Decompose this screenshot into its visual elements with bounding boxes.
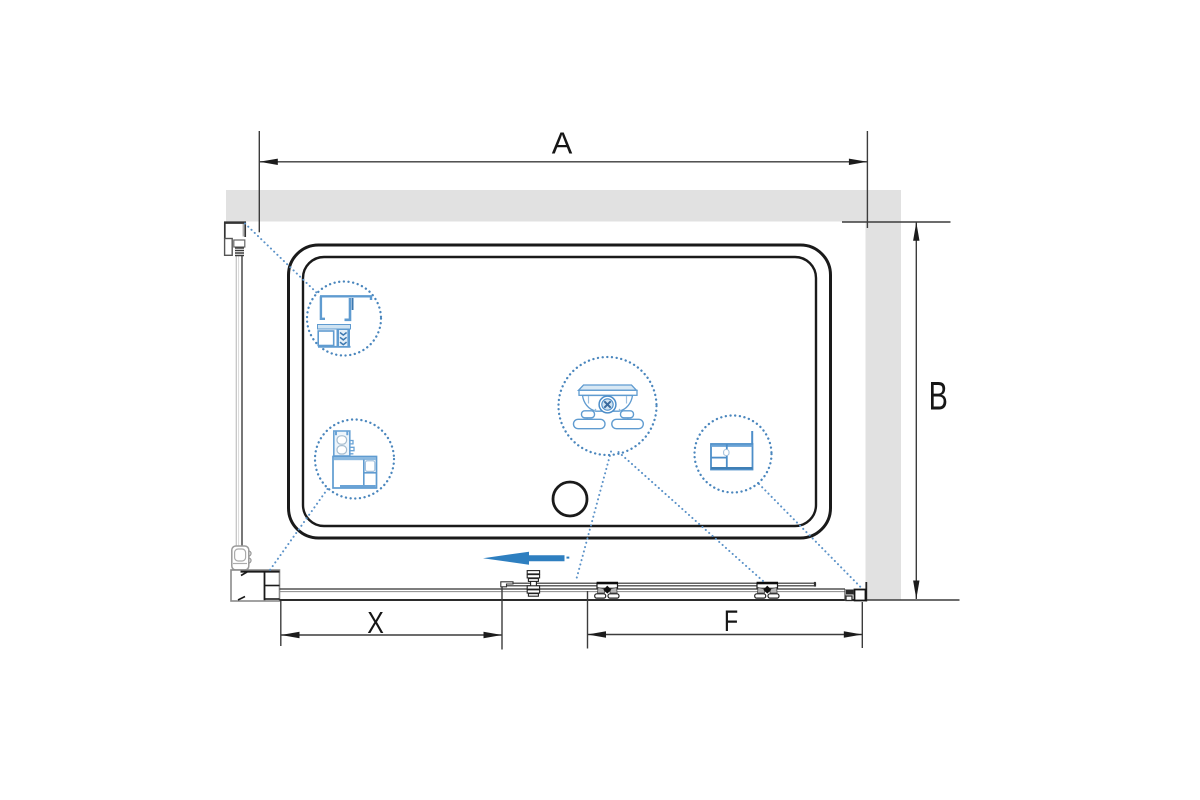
svg-text:F: F — [724, 604, 738, 637]
svg-text:A: A — [552, 126, 573, 161]
svg-text:B: B — [929, 375, 948, 418]
svg-text:X: X — [367, 606, 384, 640]
